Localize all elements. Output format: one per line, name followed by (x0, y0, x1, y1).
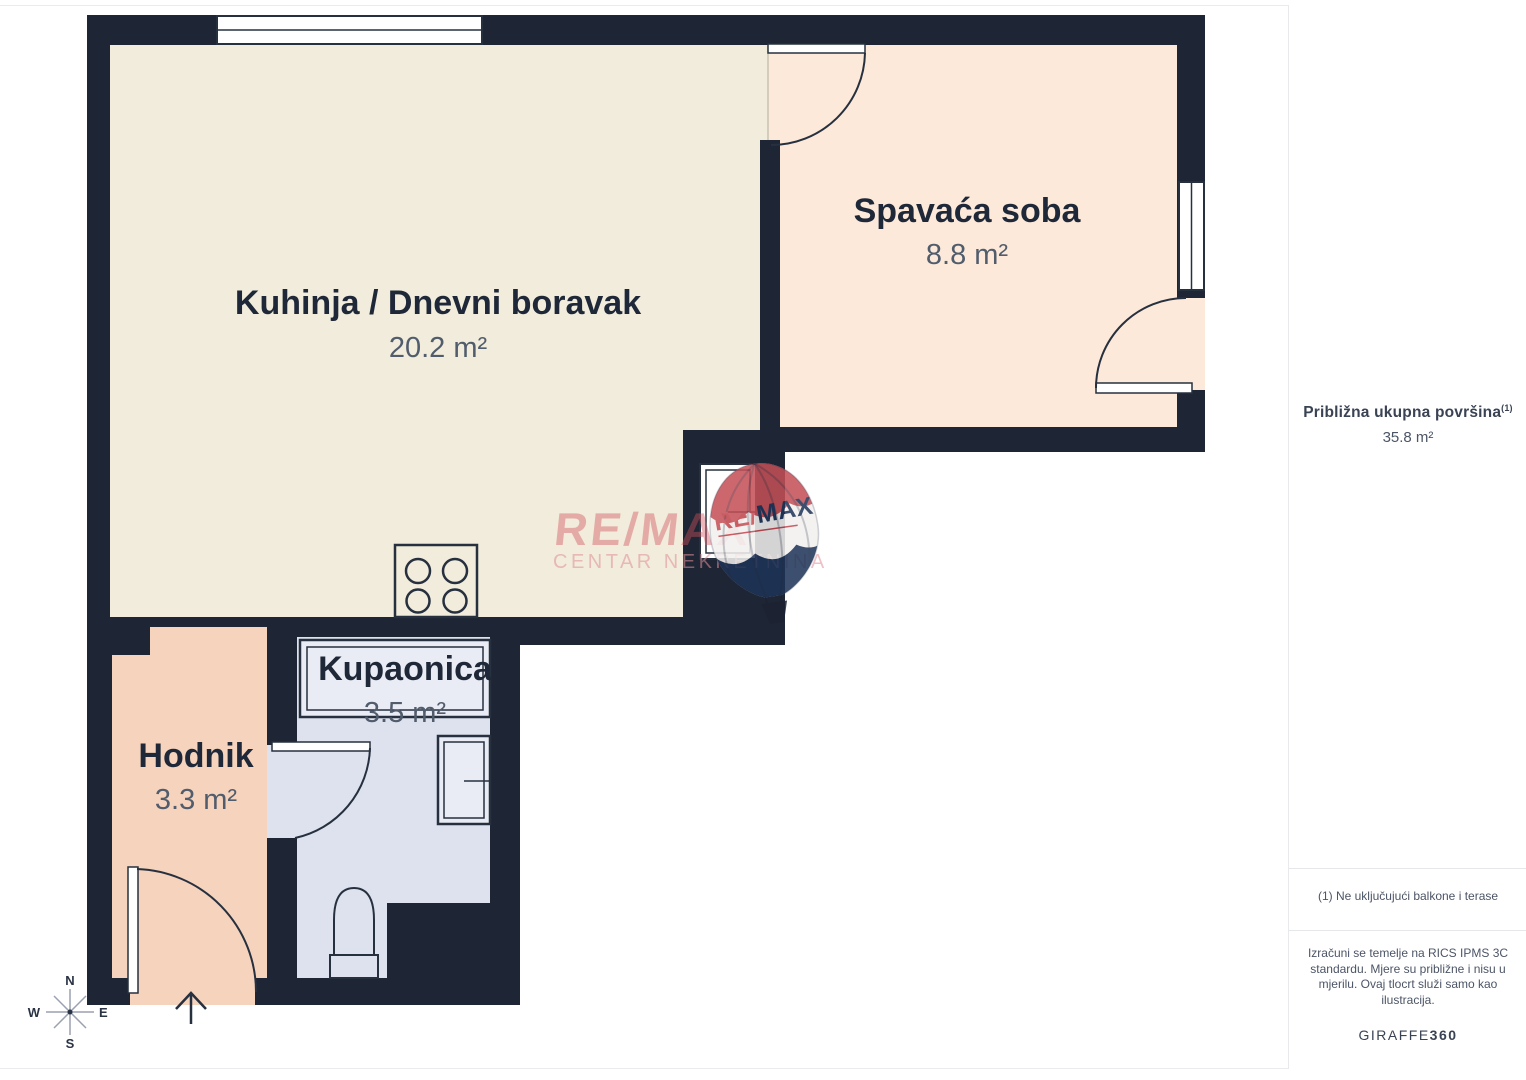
total-area-value: 35.8 m² (1289, 429, 1526, 446)
room-bathroom-label: Kupaonica (318, 650, 493, 688)
room-hallway-area: 3.3 m² (155, 784, 238, 816)
giraffe360-logo-name: GIRAFFE (1358, 1027, 1429, 1043)
compass-north-label: N (65, 973, 74, 988)
giraffe360-logo-suffix: 360 (1430, 1027, 1458, 1043)
door-leaf (128, 867, 138, 993)
bathroom-doorway-floor (267, 745, 297, 838)
door-leaf (1096, 383, 1192, 393)
room-kitchen-living-area: 20.2 m² (389, 332, 488, 364)
info-sidebar: Približna ukupna površina(1) 35.8 m² (1)… (1288, 5, 1526, 1069)
door-leaf (272, 742, 370, 751)
sidebar-divider (1289, 868, 1526, 869)
door-leaf (768, 44, 865, 53)
room-kitchen-living-label: Kuhinja / Dnevni boravak (235, 284, 641, 322)
stove-icon (395, 545, 477, 617)
compass-east-label: E (99, 1005, 108, 1020)
compass-west-label: W (28, 1005, 41, 1020)
bedroom-window (1179, 182, 1204, 290)
compass-south-label: S (66, 1036, 75, 1051)
total-area-block: Približna ukupna površina(1) 35.8 m² (1289, 403, 1526, 446)
total-area-label: Približna ukupna površina(1) (1289, 403, 1526, 422)
floorplan-page: RE/MAX CENTAR NEKRETNINA RE/MAX (0, 0, 1526, 1080)
footnote-marker: (1) (1501, 403, 1513, 413)
washer-icon (438, 736, 490, 824)
sidebar-disclaimer: Izračuni se temelje na RICS IPMS 3C stan… (1303, 946, 1513, 1008)
giraffe360-logo: GIRAFFE360 (1289, 1027, 1526, 1043)
room-hallway-label: Hodnik (138, 737, 253, 775)
toilet-icon (330, 888, 378, 978)
room-bathroom-area: 3.5 m² (364, 697, 447, 729)
sidebar-divider (1289, 930, 1526, 931)
room-bedroom-label: Spavaća soba (854, 192, 1082, 230)
room-bedroom-area: 8.8 m² (926, 239, 1009, 271)
sidebar-footnote: (1) Ne uključujući balkone i terase (1289, 889, 1526, 903)
room-bedroom-floor (768, 45, 1205, 427)
kitchen-window (217, 16, 482, 44)
